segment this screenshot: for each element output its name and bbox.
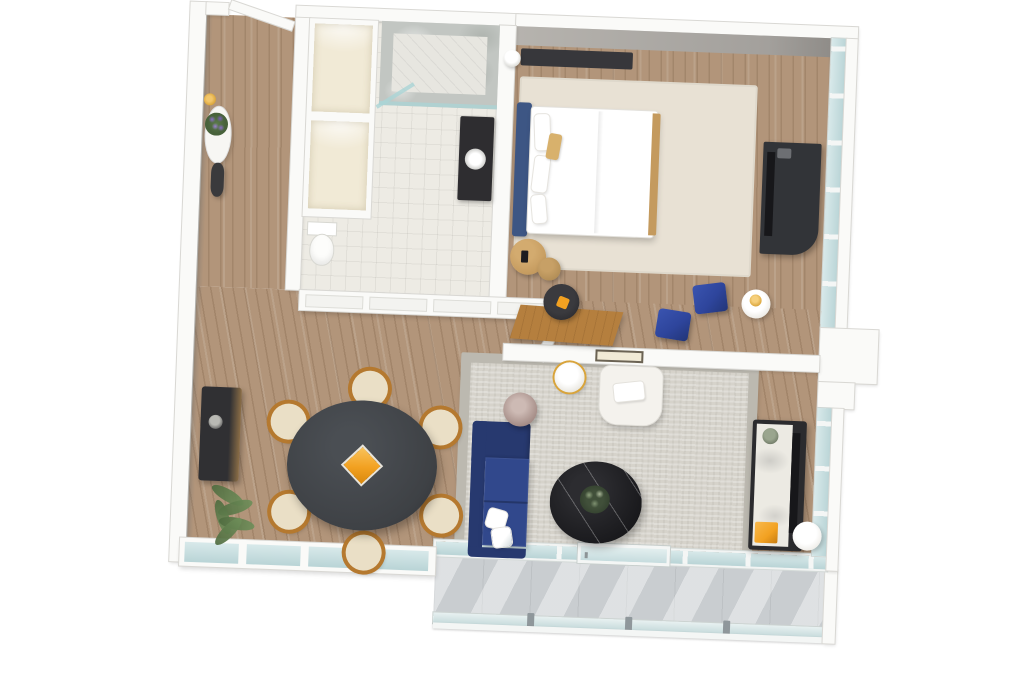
window-pane xyxy=(184,542,239,564)
door-handle-icon xyxy=(585,552,588,558)
armchair-pillow xyxy=(613,381,645,402)
balcony-east-wall xyxy=(823,569,838,643)
potted-palm-plant xyxy=(200,480,258,544)
east-wall-jog xyxy=(819,328,879,384)
phone-on-nightstand xyxy=(521,250,528,262)
east-wall-jog-step xyxy=(818,382,855,409)
dark-sideboard xyxy=(198,386,242,481)
toilet-tank xyxy=(308,222,336,235)
closets xyxy=(303,18,379,218)
orange-stool xyxy=(754,522,778,544)
entry-floor-vase xyxy=(210,162,224,196)
window-pane xyxy=(246,544,301,566)
wall-panel xyxy=(305,294,363,309)
closet-lower xyxy=(308,120,369,210)
bed-pillow xyxy=(531,195,547,224)
wall-panel xyxy=(433,299,491,314)
closet-upper xyxy=(312,23,373,113)
apartment-floor-plan xyxy=(146,1,870,675)
wall-panel xyxy=(369,297,427,312)
dresser-decor xyxy=(777,148,791,159)
navy-ottoman xyxy=(655,308,692,342)
floor-plan-scene xyxy=(0,0,1024,683)
framed-wall-art xyxy=(595,349,643,363)
sofa-pillow xyxy=(491,527,512,548)
balcony-sliding-door xyxy=(577,543,670,567)
north-wall-entry xyxy=(206,2,228,15)
navy-ottoman xyxy=(692,282,728,315)
